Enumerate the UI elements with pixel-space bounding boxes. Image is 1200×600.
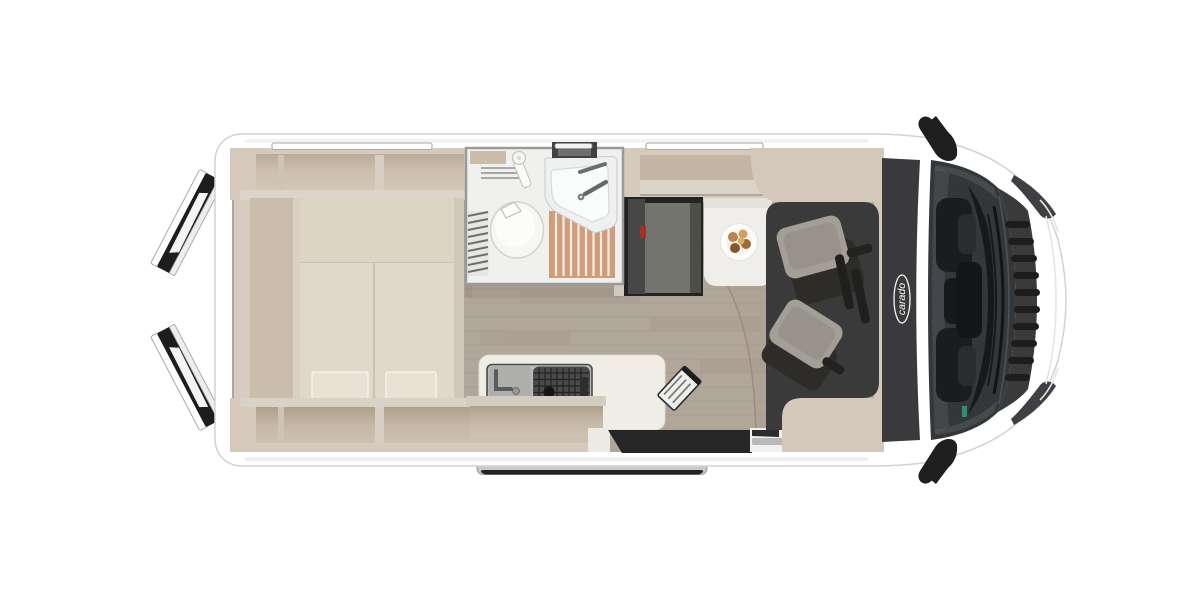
svg-text:carado: carado — [896, 283, 908, 315]
